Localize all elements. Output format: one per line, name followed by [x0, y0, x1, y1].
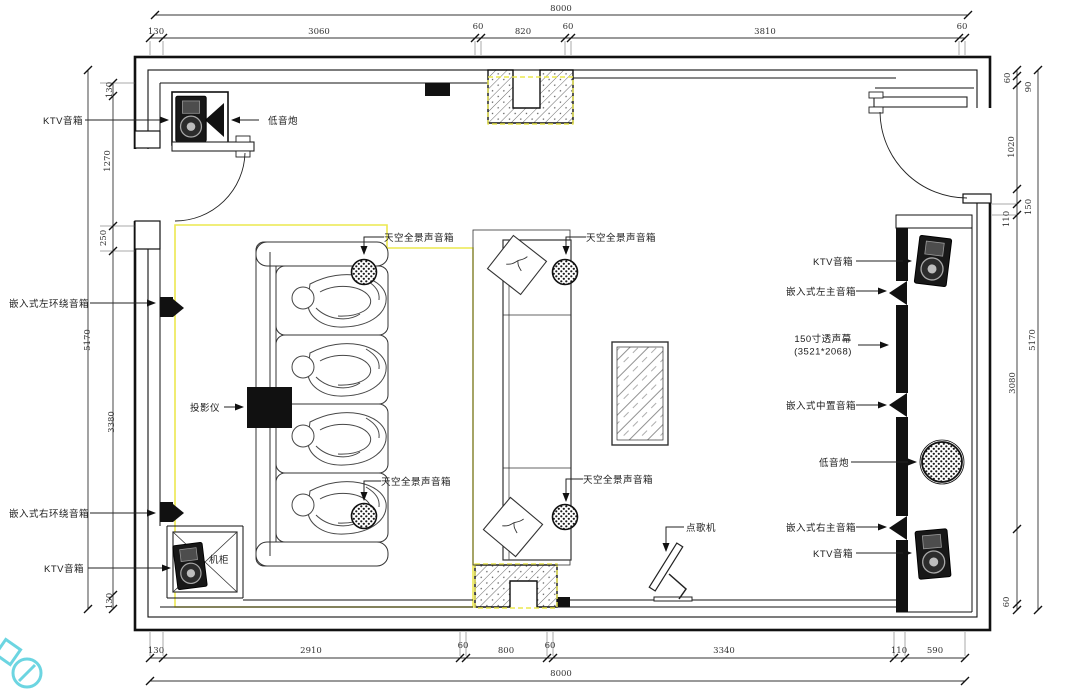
floor-plan-drawing: [0, 0, 1080, 690]
ktv-speaker-bottom-left: [173, 542, 208, 589]
in-wall-speaker-top: [425, 83, 450, 96]
door-top-right: [869, 92, 967, 198]
sky-speaker: [352, 260, 377, 285]
screen-wall: [889, 228, 908, 612]
pillar-top: [488, 70, 573, 124]
leader-lines: [85, 120, 916, 568]
right-surround-speaker: [160, 502, 184, 522]
subwoofer-right: [922, 442, 962, 482]
ktv-speaker-bottom-right: [915, 529, 951, 580]
door-top-left: [172, 136, 254, 221]
sky-speaker: [553, 260, 578, 285]
coffee-table: [612, 342, 668, 445]
ktv-speaker-top-right: [914, 235, 952, 287]
watermark-logo: [0, 639, 41, 687]
pillar-bottom: [475, 564, 557, 608]
projector: [247, 387, 292, 428]
sky-speaker: [553, 505, 578, 530]
sky-speaker: [352, 504, 377, 529]
left-surround-speaker: [160, 297, 184, 317]
ktv-speaker-top-left: [176, 96, 206, 142]
song-machine: [649, 543, 692, 601]
floor-plan-canvas: KTV音箱低音炮嵌入式左环绕音箱嵌入式右环绕音箱KTV音箱投影仪机柜天空全景声音…: [0, 0, 1080, 690]
